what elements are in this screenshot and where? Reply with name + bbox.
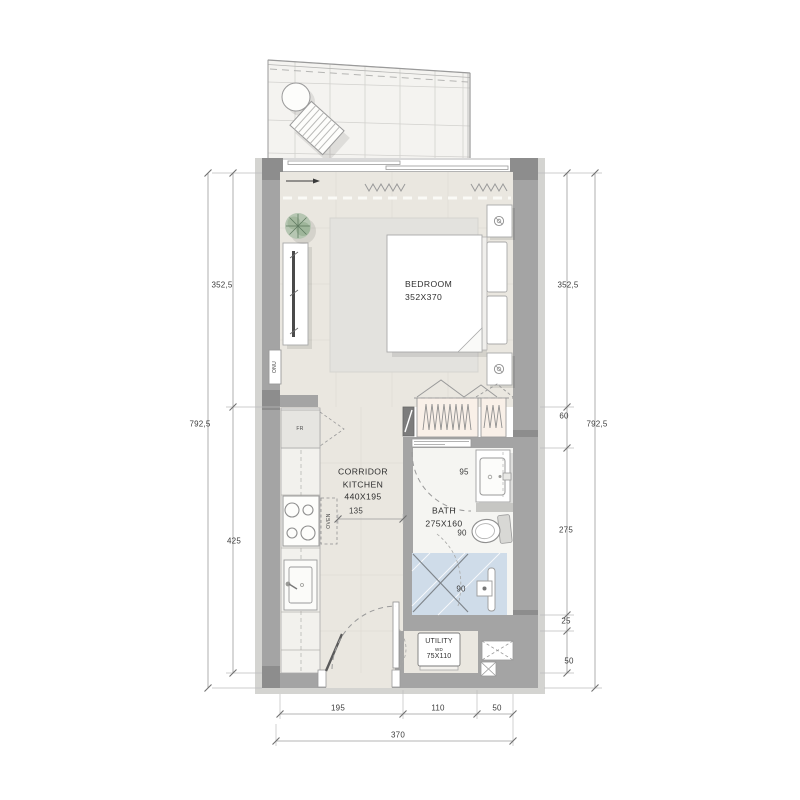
dim-left-overall: 792,5 — [189, 420, 210, 429]
balcony-window — [262, 158, 538, 172]
hob-icon — [283, 496, 319, 546]
dim-right-shaft: 50 — [564, 657, 573, 666]
bedroom-label: BEDROOM 352X370 — [405, 278, 452, 303]
bath-label: BATH 275X160 — [425, 505, 462, 530]
utility-size: 75X110 — [425, 653, 452, 661]
oven-label: OVEN — [326, 513, 332, 528]
bedroom-size: 352X370 — [405, 291, 452, 304]
utility-label: UTILITY WD 75X110 — [425, 638, 452, 661]
dim-right-wardrobe: 60 — [559, 412, 568, 421]
utility-door-leaf — [393, 602, 399, 668]
wardrobe-section — [481, 398, 506, 437]
utility-appliance: WD — [425, 645, 452, 653]
kitchen-sink — [284, 560, 317, 610]
wardrobe-section — [417, 398, 478, 437]
utility-name: UTILITY — [425, 638, 452, 646]
wall-bath-south — [403, 615, 538, 631]
onu-label: ONU — [272, 361, 278, 373]
dim-kitchen-clearance: 135 — [349, 507, 363, 516]
dim-bath-door: 95 — [459, 468, 468, 477]
sliding-window-panel — [386, 166, 508, 170]
fridge-label: FR — [296, 426, 303, 432]
kitchen-size: 440X195 — [338, 490, 388, 503]
floor-plan-drawing — [0, 0, 800, 800]
floor-plan: BEDROOM 352X370 CORRIDOR KITCHEN 440X195… — [0, 0, 800, 800]
dim-toilet-clearance: 90 — [457, 529, 466, 538]
kitchen-name-line2: KITCHEN — [338, 478, 388, 491]
dim-right-ledge: 25 — [561, 617, 570, 626]
dim-bottom-shaft: 50 — [492, 704, 501, 713]
outdoor-table — [282, 83, 310, 111]
kitchen-name-line1: CORRIDOR — [338, 465, 388, 478]
lamp-icon — [494, 216, 503, 225]
wall-left — [262, 158, 280, 688]
dim-bottom-overall: 370 — [391, 731, 405, 740]
vanity-ledge — [476, 503, 513, 512]
balcony — [268, 60, 470, 162]
lamp-icon — [494, 364, 503, 373]
corridor-kitchen-label: CORRIDOR KITCHEN 440X195 — [338, 465, 388, 503]
dim-shower-clearance: 90 — [456, 585, 465, 594]
bath-name: BATH — [425, 505, 462, 518]
dim-right-overall: 792,5 — [586, 420, 607, 429]
wall-partition-stub — [280, 395, 318, 407]
dim-left-kitchen: 425 — [227, 537, 241, 546]
mirror-panel — [403, 407, 414, 436]
dim-right-bedroom: 352,5 — [557, 281, 578, 290]
pillow — [487, 242, 507, 292]
vanity-sink — [476, 450, 513, 505]
door-jamb — [318, 670, 326, 687]
dim-left-bedroom: 352,5 — [211, 281, 232, 290]
bath-pocket-door — [412, 439, 471, 447]
dim-bottom-kitchen: 195 — [331, 704, 345, 713]
dim-right-bath: 275 — [559, 526, 573, 535]
bed-headboard — [482, 237, 487, 350]
wall-bath-west — [403, 448, 413, 615]
bedroom-name: BEDROOM — [405, 278, 452, 291]
wall-right — [513, 158, 538, 688]
dim-bottom-utility: 110 — [431, 704, 444, 713]
pillow — [487, 296, 507, 344]
sliding-window-panel — [288, 161, 400, 165]
door-jamb — [392, 670, 400, 687]
